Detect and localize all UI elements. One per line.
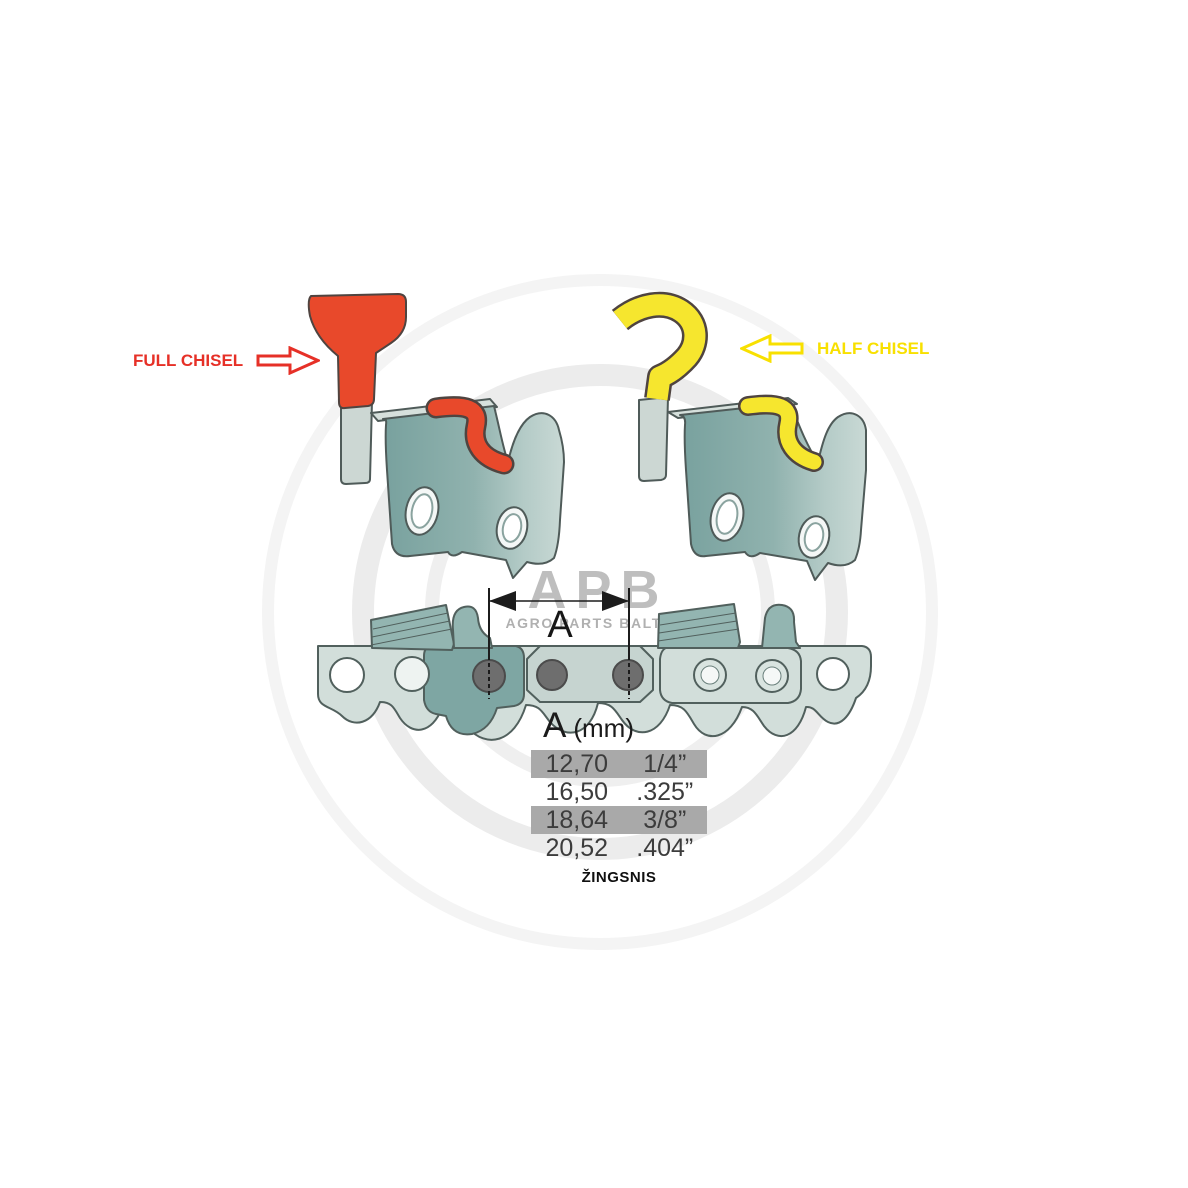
pitch-mm-value: 12,70 bbox=[531, 750, 623, 779]
illustration-svg: APB AGRO PARTS BALTIJA bbox=[0, 0, 1188, 1188]
chain-hole-right-1-inner bbox=[701, 666, 719, 684]
half-chisel-label: HALF CHISEL bbox=[740, 334, 929, 363]
pitch-inch-value: 3/8” bbox=[623, 806, 707, 835]
half-chisel-label-text: HALF CHISEL bbox=[817, 339, 929, 359]
table-row: 16,50 .325” bbox=[531, 778, 707, 806]
arrow-left-icon bbox=[740, 334, 804, 363]
chain-hole-left-end bbox=[330, 658, 364, 692]
chain-left-cutter-blade bbox=[371, 605, 454, 650]
table-row: 18,64 3/8” bbox=[531, 806, 707, 834]
full-chisel-cutter bbox=[309, 294, 564, 578]
half-chisel-shank bbox=[639, 397, 668, 481]
half-chisel-plate bbox=[680, 403, 866, 580]
table-row: 12,70 1/4” bbox=[531, 750, 707, 778]
chain-rivet-middle bbox=[537, 660, 567, 690]
full-chisel-label: FULL CHISEL bbox=[133, 346, 320, 375]
table-row: 20,52 .404” bbox=[531, 834, 707, 862]
chain-right-cutter-hook bbox=[762, 605, 800, 648]
pitch-table: 12,70 1/4” 16,50 .325” 18,64 3/8” 20,52 … bbox=[531, 750, 707, 886]
pitch-inch-value: 1/4” bbox=[623, 750, 707, 779]
pitch-header-symbol: A bbox=[543, 706, 566, 746]
chain-hole-left-2 bbox=[395, 657, 429, 691]
pitch-inch-value: .404” bbox=[623, 834, 707, 863]
pitch-header-unit: (mm) bbox=[573, 713, 634, 744]
pitch-table-header: A (mm) bbox=[543, 706, 634, 746]
chain-left-cutter-hook bbox=[453, 606, 492, 648]
chain-right-cutter-blade bbox=[658, 604, 740, 648]
chain-hole-right-end bbox=[817, 658, 849, 690]
pitch-inch-value: .325” bbox=[623, 778, 707, 807]
pitch-mm-value: 16,50 bbox=[531, 778, 623, 807]
dimension-label: A bbox=[547, 604, 573, 646]
pitch-footer-label: ŽINGSNIS bbox=[531, 869, 707, 886]
full-chisel-shank bbox=[341, 401, 372, 484]
pitch-mm-value: 18,64 bbox=[531, 806, 623, 835]
arrow-right-icon bbox=[256, 346, 320, 375]
pitch-mm-value: 20,52 bbox=[531, 834, 623, 863]
chain-hole-right-2-inner bbox=[763, 667, 781, 685]
chainsaw-chain-pitch-diagram: APB AGRO PARTS BALTIJA bbox=[0, 0, 1188, 1188]
full-chisel-label-text: FULL CHISEL bbox=[133, 351, 243, 371]
dimension-arrowhead-left bbox=[489, 591, 516, 611]
